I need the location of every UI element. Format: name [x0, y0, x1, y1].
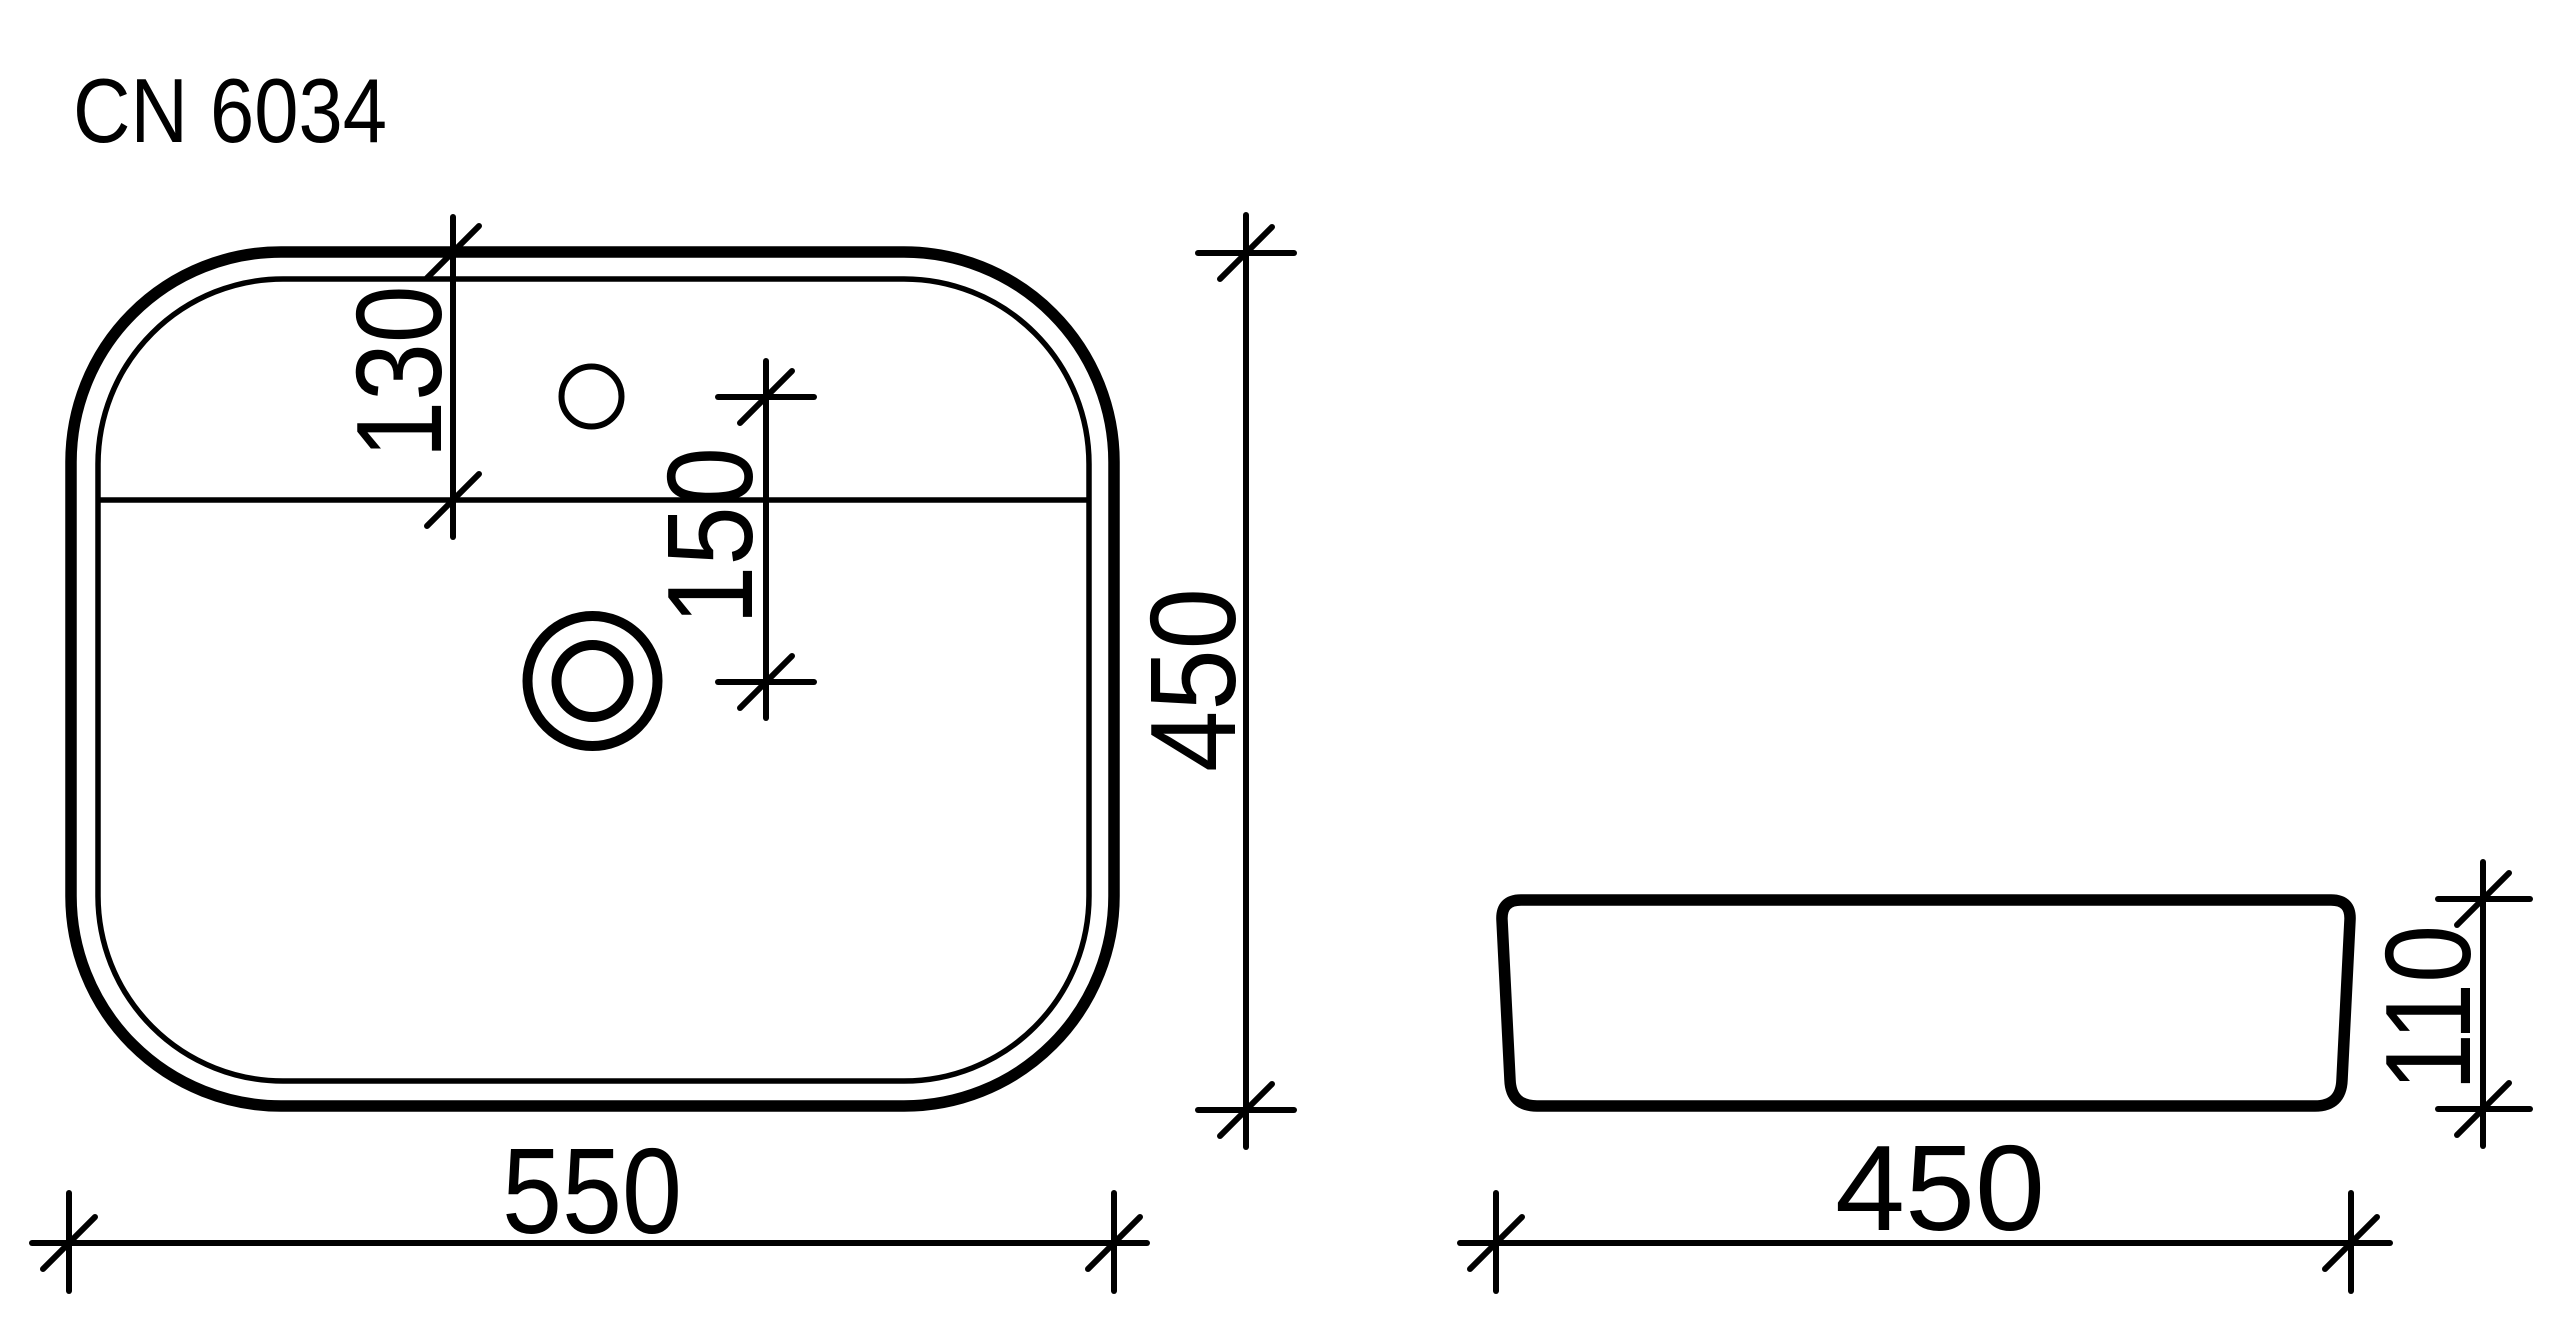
svg-text:150: 150 — [642, 447, 778, 625]
svg-text:130: 130 — [331, 286, 467, 459]
svg-text:110: 110 — [2360, 925, 2496, 1091]
svg-text:CN 6034: CN 6034 — [73, 61, 387, 162]
svg-text:450: 450 — [1835, 1120, 2045, 1256]
svg-text:550: 550 — [502, 1123, 682, 1259]
svg-text:450: 450 — [1125, 588, 1261, 772]
